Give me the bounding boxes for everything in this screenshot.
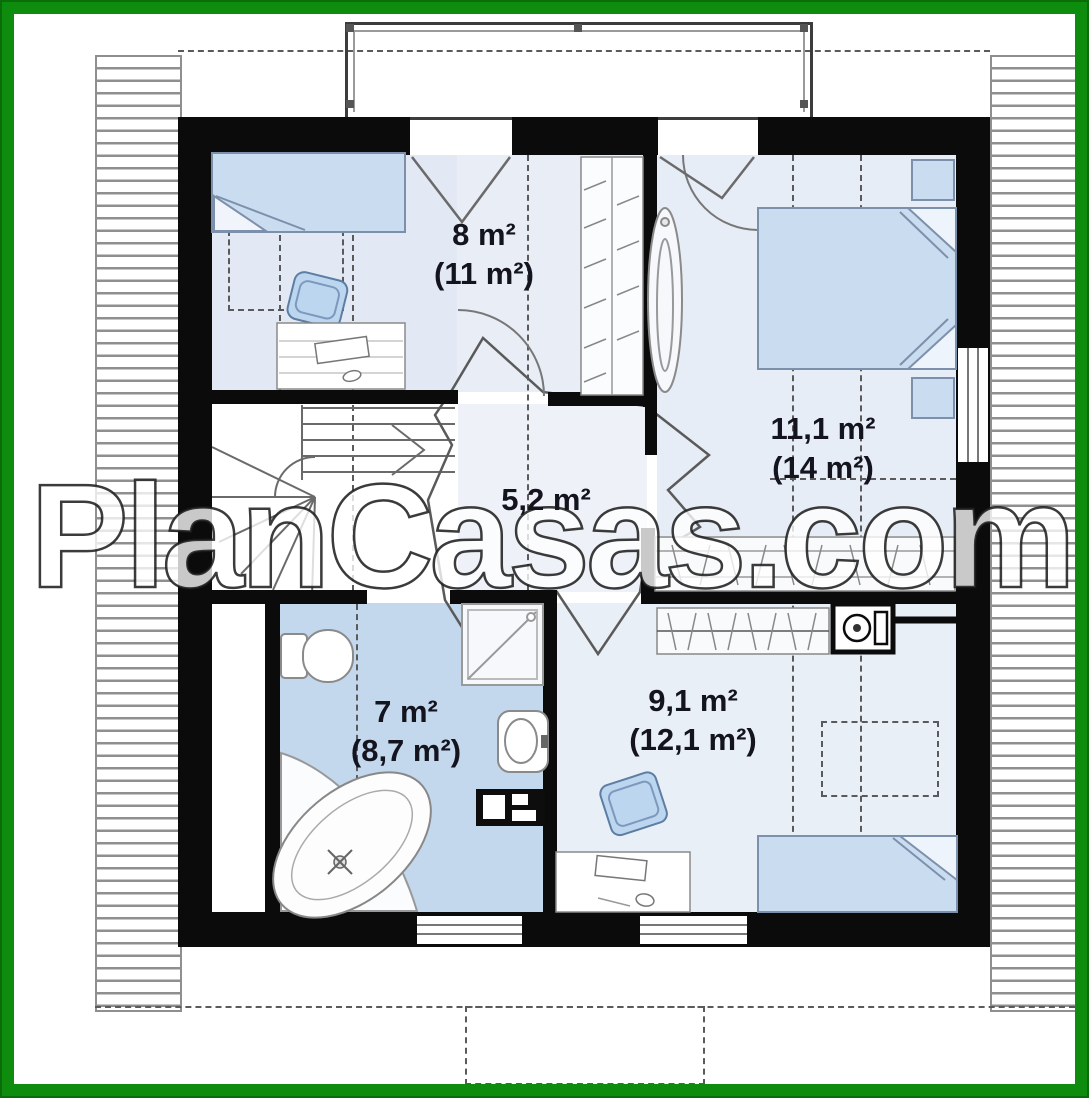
balcony-railing-inner-line — [353, 30, 805, 112]
wall-bottom — [178, 912, 990, 947]
area-gross: (11 m²) — [394, 254, 574, 293]
area-gross: (8,7 m²) — [316, 731, 496, 770]
area-label-bedroom-11: 11,1 m² (14 m²) — [733, 409, 913, 487]
area-net: 11,1 m² — [733, 409, 913, 448]
dash-rect-skylight — [821, 721, 939, 797]
area-label-hall-5: 5,2 m² — [456, 480, 636, 519]
dormer-dash-rect-bottom — [465, 1006, 705, 1085]
area-net: 5,2 m² — [456, 480, 636, 519]
wall-room8-south — [548, 392, 647, 406]
dash-rect-study — [228, 230, 344, 311]
wall-room8-east — [643, 155, 657, 407]
wall-study-south — [212, 390, 458, 404]
area-gross: (12,1 m²) — [603, 720, 783, 759]
watermark-plancasas: PlanCasas.com — [30, 452, 1070, 622]
wall-hall-stub — [645, 407, 657, 455]
window-bottom-right — [640, 916, 747, 944]
area-gross: (14 m²) — [733, 448, 913, 487]
wall-top-mid — [512, 117, 658, 155]
window-bottom-left — [417, 916, 522, 944]
area-net: 9,1 m² — [603, 681, 783, 720]
area-label-bathroom-7: 7 m² (8,7 m²) — [316, 692, 496, 770]
balcony-railing — [345, 22, 813, 120]
floor-plan-canvas: 8 m² (11 m²) 11,1 m² (14 m²) 5,2 m² 7 m²… — [0, 0, 1089, 1098]
area-label-bedroom-9: 9,1 m² (12,1 m²) — [603, 681, 783, 759]
wall-top-left — [178, 117, 410, 155]
area-net: 8 m² — [394, 215, 574, 254]
wall-bath-west — [265, 603, 280, 912]
area-label-room-8: 8 m² (11 m²) — [394, 215, 574, 293]
wall-bath-east — [543, 603, 557, 912]
window-right-wall — [958, 348, 988, 462]
area-net: 7 m² — [316, 692, 496, 731]
